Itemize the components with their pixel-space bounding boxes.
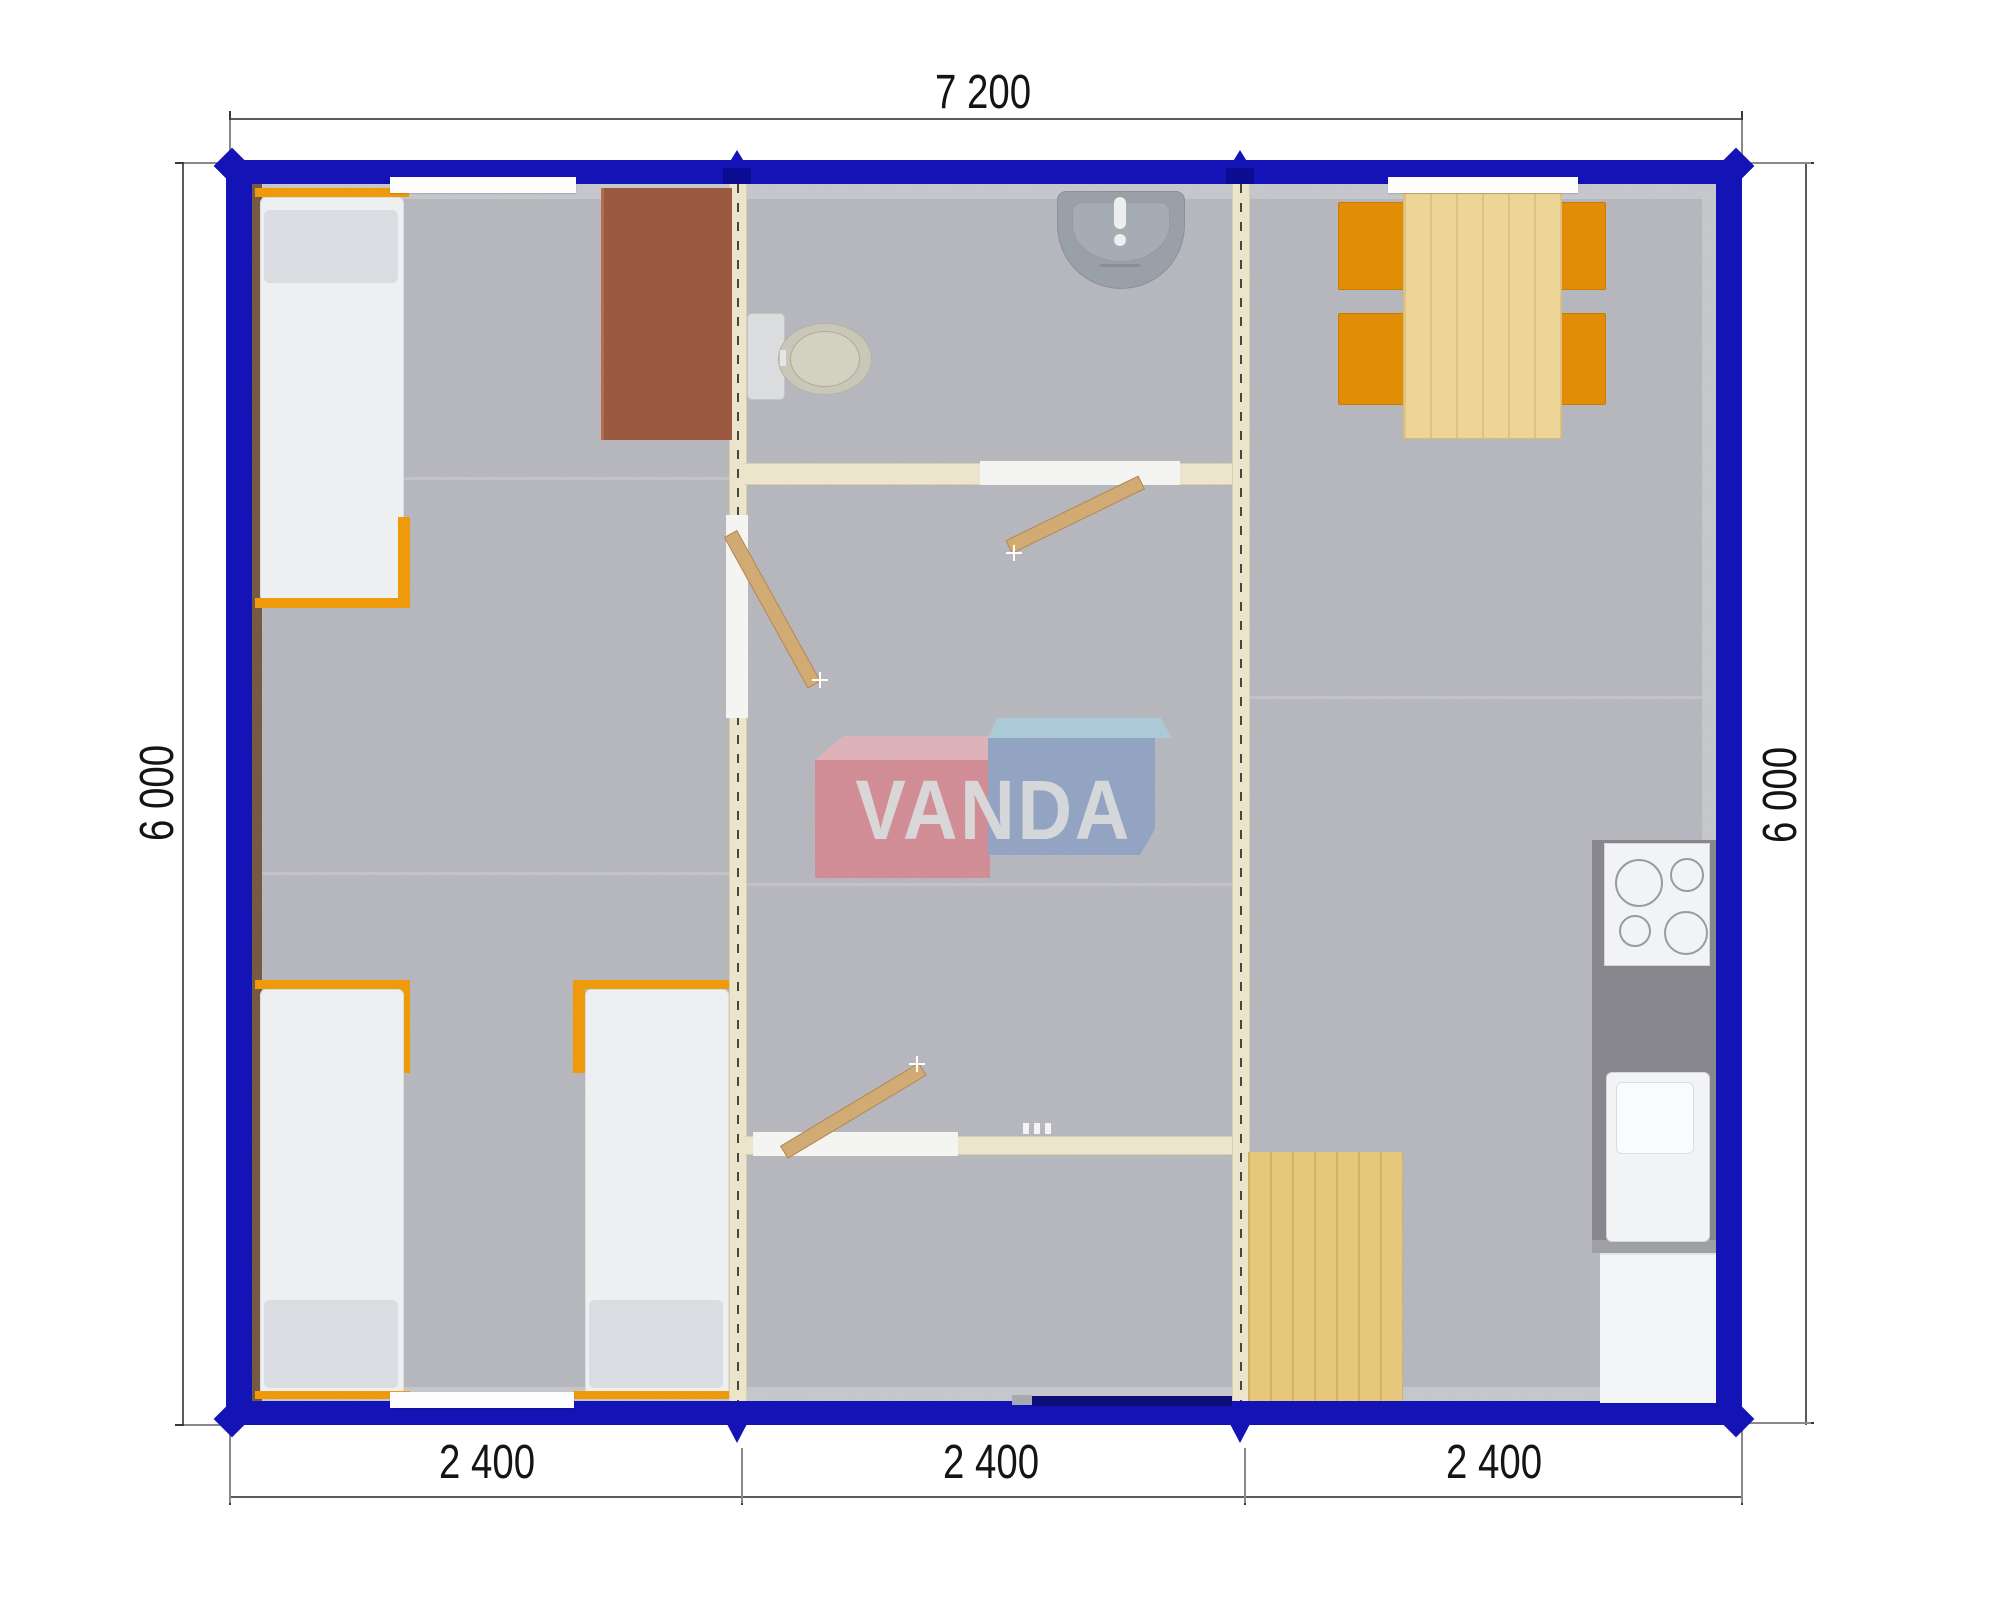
chair-2 bbox=[1338, 313, 1405, 405]
logo-red-box-top bbox=[815, 736, 990, 760]
bed-2-headboard bbox=[255, 980, 410, 989]
burner-icon bbox=[1619, 915, 1651, 947]
bed-1-pillow bbox=[264, 210, 398, 283]
bed-1-headboard bbox=[255, 188, 409, 197]
dimension-line-bottom bbox=[230, 1496, 1742, 1498]
basin-drain bbox=[1100, 264, 1140, 267]
bed-2-pillow bbox=[264, 1300, 398, 1388]
bed-3-pillow bbox=[589, 1300, 723, 1388]
chair-1 bbox=[1338, 202, 1405, 290]
dimension-top: 7 200 bbox=[903, 68, 1063, 118]
floor-plan: 7 200 6 000 6 000 2 400 2 400 2 400 bbox=[0, 0, 2000, 1597]
bed-3-side-rail bbox=[573, 980, 585, 1073]
entry-threshold bbox=[1030, 1396, 1232, 1406]
window-top-left bbox=[390, 177, 576, 193]
carpet-seam bbox=[262, 872, 729, 875]
interior-floor: VANDA bbox=[252, 184, 1716, 1401]
bed-1-footboard bbox=[255, 598, 409, 608]
bed-3-headboard bbox=[573, 980, 729, 989]
bed-2-footboard bbox=[255, 1391, 410, 1399]
dimension-bottom-3: 2 400 bbox=[1414, 1438, 1574, 1488]
floor-mat bbox=[1248, 1152, 1403, 1401]
door-track-tooth bbox=[1034, 1123, 1040, 1134]
burner-icon bbox=[1670, 858, 1704, 892]
dimension-left: 6 000 bbox=[133, 673, 183, 913]
dimension-line-top bbox=[230, 118, 1742, 120]
door-track-tooth bbox=[1023, 1123, 1029, 1134]
toilet-seat bbox=[790, 331, 860, 387]
extension-line bbox=[741, 1448, 743, 1503]
door-handle bbox=[909, 1056, 925, 1072]
dimension-line-right bbox=[1805, 163, 1807, 1425]
door-handle bbox=[812, 672, 828, 688]
faucet-icon bbox=[1114, 197, 1126, 229]
vanda-watermark: VANDA bbox=[812, 714, 1177, 889]
module-joint-arrow-bottom-1 bbox=[717, 1405, 757, 1443]
module-joint-arrow-bottom-2 bbox=[1220, 1405, 1260, 1443]
kitchen-sink-basin bbox=[1616, 1082, 1694, 1154]
carpet-seam bbox=[1248, 696, 1702, 699]
dimension-bottom-2: 2 400 bbox=[911, 1438, 1071, 1488]
entry-step bbox=[1012, 1395, 1032, 1405]
dimension-bottom-1: 2 400 bbox=[407, 1438, 567, 1488]
door-handle bbox=[1006, 545, 1022, 561]
faucet-dot bbox=[1114, 234, 1126, 246]
desk bbox=[601, 188, 732, 440]
door-track-tooth bbox=[1045, 1123, 1051, 1134]
extension-line bbox=[229, 1435, 231, 1503]
logo-text: VANDA bbox=[855, 762, 1132, 859]
logo-blue-box-top bbox=[988, 718, 1172, 738]
extension-line bbox=[1745, 1422, 1811, 1424]
stove bbox=[1604, 843, 1710, 966]
extension-line bbox=[1741, 1427, 1743, 1503]
dimension-line-left bbox=[182, 163, 184, 1425]
extension-line bbox=[1745, 162, 1811, 164]
toilet-hinge bbox=[780, 350, 786, 366]
bed-3-footboard bbox=[573, 1391, 729, 1399]
dining-table bbox=[1403, 193, 1562, 439]
extension-line bbox=[1244, 1448, 1246, 1503]
dimension-right: 6 000 bbox=[1756, 675, 1806, 915]
bathroom-door-opening bbox=[980, 461, 1180, 485]
kitchen-cabinet bbox=[1600, 1253, 1716, 1403]
window-bottom-left bbox=[390, 1392, 574, 1408]
bed-1-side-rail bbox=[398, 517, 410, 608]
window-top-right bbox=[1388, 177, 1578, 193]
burner-icon bbox=[1664, 911, 1708, 955]
burner-icon bbox=[1615, 859, 1663, 907]
